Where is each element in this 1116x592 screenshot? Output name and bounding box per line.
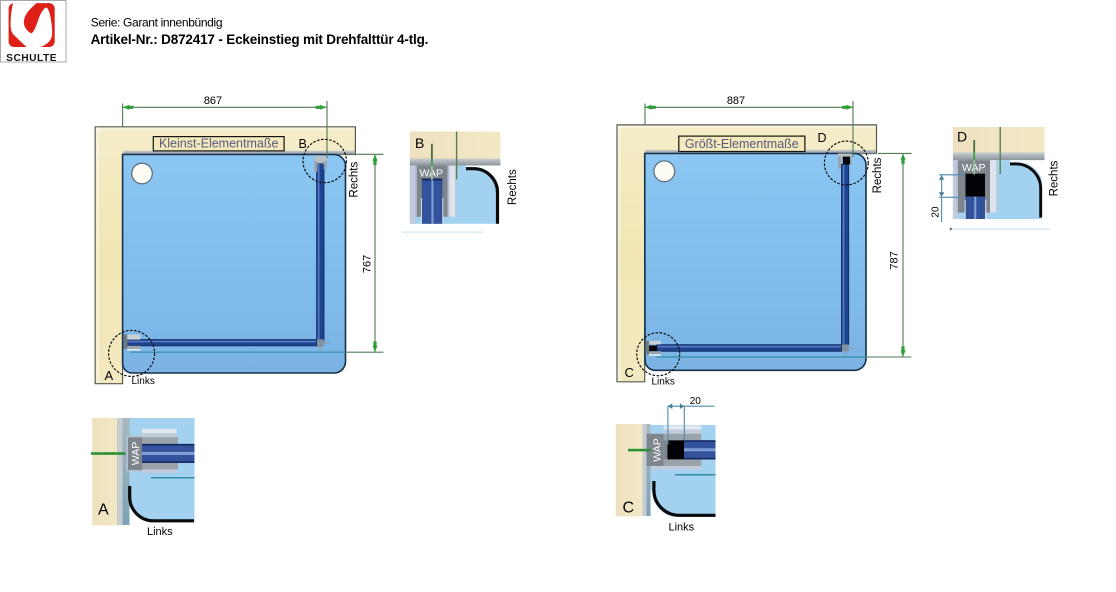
svg-text:767: 767 (362, 255, 374, 273)
svg-text:C: C (623, 500, 635, 517)
svg-text:Rechts: Rechts (507, 169, 519, 205)
svg-text:Serie: Garant innenbündig: Serie: Garant innenbündig (91, 16, 222, 30)
svg-text:Rechts: Rechts (349, 162, 361, 198)
svg-text:Rechts: Rechts (1049, 160, 1061, 196)
svg-text:Links: Links (132, 376, 155, 387)
svg-text:Artikel-Nr.: D872417 - Eckein: Artikel-Nr.: D872417 - Eckeinstieg mit D… (91, 32, 429, 47)
svg-text:D: D (818, 131, 827, 145)
svg-text:Rechts: Rechts (872, 157, 884, 193)
svg-text:A: A (98, 502, 109, 519)
svg-text:D: D (957, 129, 967, 145)
svg-text:A: A (105, 368, 114, 383)
svg-text:867: 867 (204, 95, 222, 107)
svg-text:Links: Links (652, 377, 675, 388)
svg-text:Kleinst-Elementmaße: Kleinst-Elementmaße (159, 137, 279, 151)
svg-text:787: 787 (889, 251, 901, 269)
svg-text:WAP: WAP (652, 438, 664, 462)
svg-text:B: B (299, 137, 307, 151)
svg-text:Links: Links (669, 522, 695, 534)
svg-text:Links: Links (147, 526, 173, 538)
svg-text:887: 887 (727, 95, 745, 107)
svg-text:20: 20 (931, 206, 942, 218)
svg-text:20: 20 (690, 396, 702, 407)
svg-text:Größt-Elementmaße: Größt-Elementmaße (685, 137, 799, 151)
svg-text:B: B (415, 135, 424, 151)
svg-text:WAP: WAP (130, 442, 142, 466)
svg-text:SCHULTE: SCHULTE (6, 53, 57, 64)
svg-text:C: C (625, 365, 634, 380)
